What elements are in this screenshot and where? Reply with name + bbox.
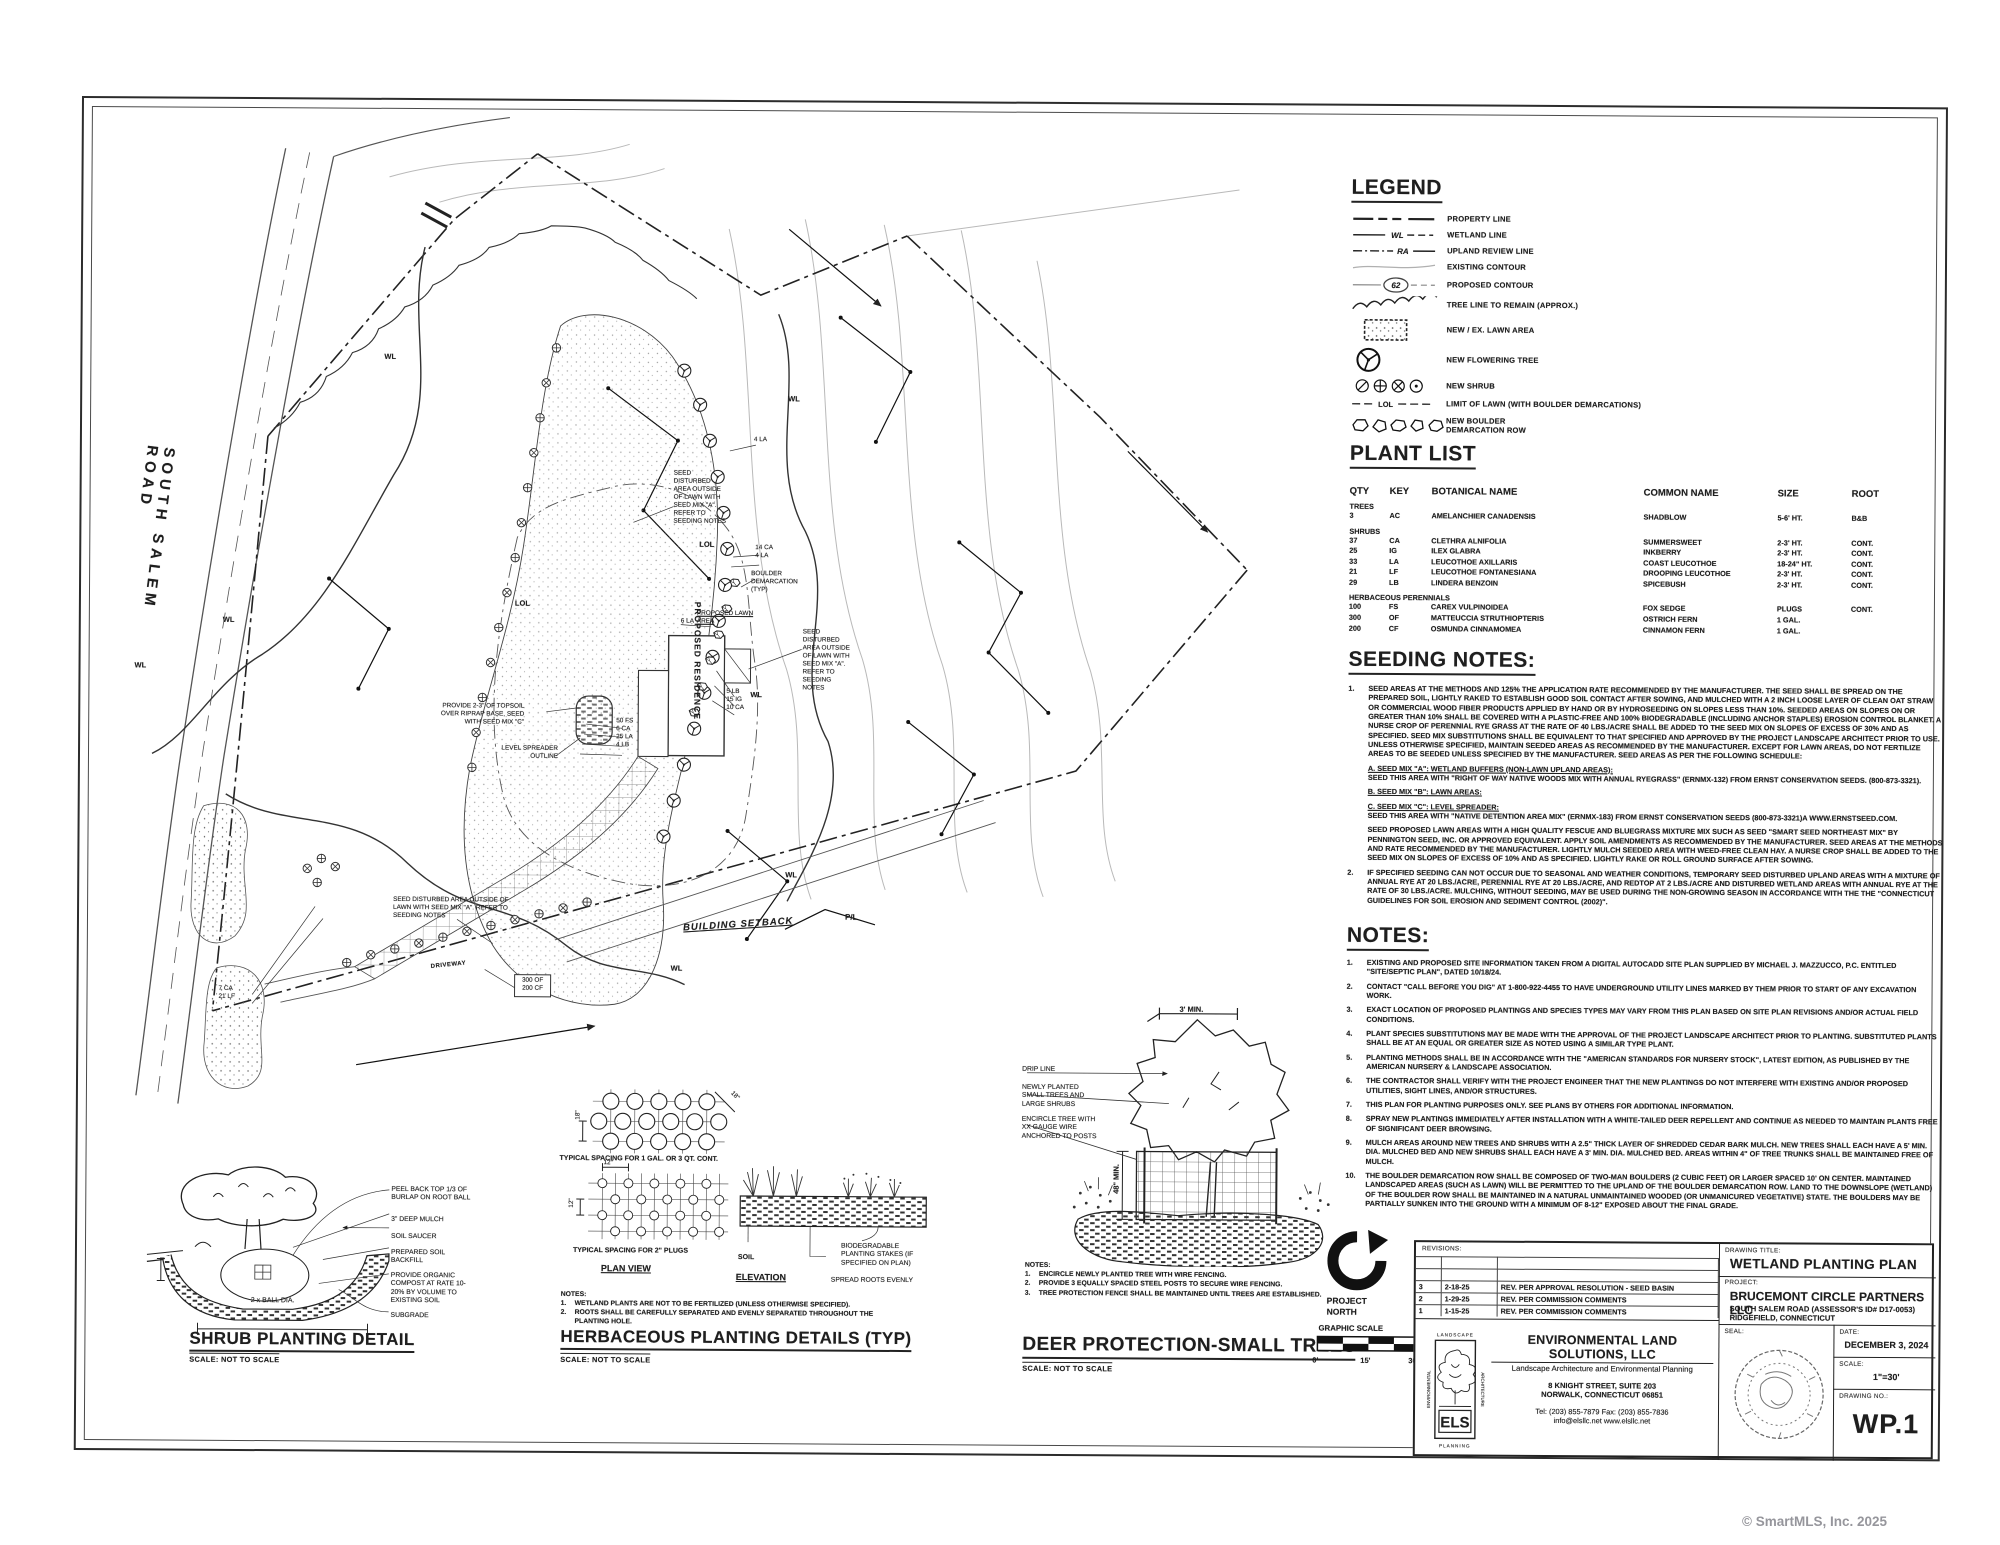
rev-2-date: 1-29-25 — [1442, 1292, 1498, 1304]
herb-caption-1: TYPICAL SPACING FOR 1 GAL. OR 3 QT. CONT… — [559, 1155, 717, 1165]
north-arrow-icon — [1326, 1230, 1388, 1292]
proposed-contour-symbol: 62 — [1351, 276, 1447, 295]
project-label: PROJECT: — [1725, 1279, 1758, 1286]
scale-value: 1"=30' — [1839, 1372, 1933, 1383]
project-addr2: RIDGEFIELD, CONNECTICUT — [1730, 1313, 1934, 1323]
scale-tick-0: 0' — [1312, 1356, 1318, 1365]
shrub-callout-3: SOIL SAUCER — [391, 1233, 487, 1242]
els-logo-text: ELS — [1440, 1414, 1469, 1431]
seeding-note-1: SEED AREAS AT THE METHODS AND 125% THE A… — [1368, 684, 1944, 762]
herb-caption-2: TYPICAL SPACING FOR 2" PLUGS — [573, 1247, 688, 1256]
herbaceous-detail-title: HERBACEOUS PLANTING DETAILS (TYP) — [560, 1327, 911, 1352]
scale-label: SCALE: — [1839, 1361, 1864, 1368]
drawing-title: WETLAND PLANTING PLAN — [1730, 1256, 1930, 1272]
project-north-label: PROJECT NORTH — [1327, 1296, 1367, 1318]
rev-3-date: 2-18-25 — [1442, 1280, 1498, 1292]
svg-text:ARCHITECTURE: ARCHITECTURE — [1480, 1372, 1485, 1406]
note-8: SPRAY NEW PLANTINGS IMMEDIATELY AFTER IN… — [1366, 1114, 1942, 1136]
drawing-sheet: WL WL WL WL WL WL WL LOL LOL SOUTH SALEM… — [0, 0, 2000, 1545]
seed-note-right: SEED DISTURBED AREA OUTSIDE OF LAWN WITH… — [802, 628, 850, 692]
legend-item-flowering-tree: NEW FLOWERING TREE — [1350, 346, 1690, 376]
herb-elevation-label: ELEVATION — [736, 1272, 786, 1282]
upland-review-symbol: RA — [1351, 244, 1447, 259]
legend-item-existing-contour: EXISTING CONTOUR — [1351, 260, 1691, 276]
legend-item-tree-line: TREE LINE TO REMAIN (APPROX.) — [1351, 296, 1691, 316]
tree-line-symbol — [1351, 296, 1447, 315]
deer-dim-top: 3' MIN. — [1179, 1005, 1203, 1015]
herb-stakes-label: BIODEGRADABLE PLANTING STAKES (IF SPECIF… — [841, 1243, 925, 1269]
seed-note-upper: SEED DISTURBED AREA OUTSIDE OF LAWN WITH… — [673, 470, 727, 526]
deer-detail-scale: SCALE: NOT TO SCALE — [1022, 1362, 1112, 1374]
note-9: MULCH AREAS AROUND NEW TREES AND SHRUBS … — [1366, 1138, 1942, 1170]
deer-dim-side: 48" MIN. — [1112, 1164, 1122, 1194]
scale-tick-15: 15' — [1360, 1356, 1370, 1365]
existing-contour-symbol — [1351, 260, 1447, 275]
herb-soil-label: SOIL — [738, 1254, 754, 1263]
rev-1-no: 1 — [1416, 1304, 1442, 1316]
flowering-tree-symbol — [1350, 346, 1446, 375]
deer-notes: NOTES: 1.ENCIRCLE NEWLY PLANTED TREE WIT… — [1025, 1262, 1325, 1302]
rev-1-date: 1-15-25 — [1442, 1304, 1498, 1316]
seed-mix-b-head: B. SEED MIX "B": LAWN AREAS: — [1368, 787, 1944, 800]
herb-plan-view-label: PLAN VIEW — [601, 1263, 651, 1273]
callout-14ca: 14 CA4 LA — [755, 544, 773, 560]
boulder-typ-label: BOULDER DEMARCATION (TYP) — [751, 570, 803, 594]
callout-6la: 6 LA — [681, 618, 694, 626]
shrub-dim-label: 2 x BALL DIA. — [233, 1297, 313, 1306]
note-10: THE BOULDER DEMARCATION ROW SHALL BE COM… — [1365, 1171, 1941, 1212]
drawing-no-label: DRAWING NO.: — [1839, 1393, 1888, 1400]
firm-info: ENVIRONMENTAL LAND SOLUTIONS, LLC Landsc… — [1491, 1333, 1714, 1426]
firm-name: ENVIRONMENTAL LAND SOLUTIONS, LLC — [1491, 1333, 1713, 1362]
callout-group3: 7 CA21 LF — [218, 985, 234, 1001]
shrub-callout-6: SUBGRADE — [391, 1312, 487, 1321]
lol-label: LOL — [699, 540, 714, 549]
rev-1-desc: REV. PER COMMISSION COMMENTS — [1498, 1305, 1719, 1318]
pl-marker: P/L — [845, 913, 858, 923]
topsoil-note: PROVIDE 2-3" OF TOPSOIL OVER RIPRAP BASE… — [432, 702, 524, 727]
scanned-sheet-page: WL WL WL WL WL WL WL LOL LOL SOUTH SALEM… — [0, 0, 2000, 1545]
herb-dim12-left: 12" — [568, 1198, 576, 1207]
date-value: DECEMBER 3, 2024 — [1839, 1340, 1933, 1351]
notes-title: NOTES: — [1347, 924, 1430, 952]
survey-traverse-lines — [326, 227, 1209, 1070]
rev-3-no: 3 — [1416, 1280, 1442, 1292]
date-label: DATE: — [1839, 1329, 1859, 1336]
stipple-patches — [190, 803, 266, 1089]
legend-list: PROPERTY LINE WL WETLAND LINE RA UPLAND … — [1350, 212, 1691, 441]
wl-label: WL — [785, 870, 797, 879]
wl-label: WL — [750, 690, 762, 699]
deer-callout-newly-planted: NEWLY PLANTED SMALL TREES AND LARGE SHRU… — [1022, 1084, 1096, 1110]
wl-label: WL — [788, 394, 800, 403]
revisions-label: REVISIONS: — [1422, 1245, 1462, 1252]
note-4: PLANT SPECIES SUBSTITUTIONS MAY BE MADE … — [1366, 1029, 1942, 1051]
wl-label: WL — [671, 964, 683, 973]
firm-web: info@elsllc.net www.elsllc.net — [1491, 1416, 1713, 1426]
svg-text:PLANNING: PLANNING — [1439, 1443, 1471, 1448]
south-salem-road — [136, 115, 510, 1105]
notes-list: 1.EXISTING AND PROPOSED SITE INFORMATION… — [1345, 958, 1943, 1217]
legend-item-limit-of-lawn: LOL LIMIT OF LAWN (WITH BOULDER DEMARCAT… — [1350, 397, 1690, 413]
limit-of-lawn-symbol: LOL — [1350, 397, 1446, 412]
wl-label: WL — [223, 615, 235, 624]
seeding-notes-body: 1.SEED AREAS AT THE METHODS AND 125% THE… — [1347, 684, 1944, 914]
seal-label: SEAL: — [1724, 1328, 1744, 1335]
herbaceous-detail-scale: SCALE: NOT TO SCALE — [560, 1353, 650, 1365]
lawn-area-label: PROPOSED LAWN AREA — [697, 610, 769, 626]
seeding-note-2: IF SPECIFIED SEEDING CAN NOT OCCUR DUE T… — [1367, 867, 1943, 908]
rev-2-no: 2 — [1416, 1292, 1442, 1304]
callout-4la: 4 LA — [754, 436, 767, 444]
wl-label: WL — [384, 352, 396, 361]
revisions-table: 3 2-18-25 REV. PER APPROVAL RESOLUTION -… — [1416, 1256, 1719, 1318]
shrub-callout-4: PREPARED SOIL BACKFILL — [391, 1249, 471, 1266]
note-2: CONTACT "CALL BEFORE YOU DIG" AT 1-800-9… — [1367, 982, 1943, 1004]
shrub-detail-sketch — [142, 1162, 393, 1344]
lawn-area-symbol — [1351, 318, 1447, 343]
deer-callout-dripline: DRIP LINE — [1022, 1066, 1092, 1075]
seed-note-bottom: SEED DISTURBED AREA OUTSIDE OF LAWN WITH… — [393, 896, 511, 921]
legend-item-lawn-area: NEW / EX. LAWN AREA — [1351, 318, 1691, 344]
drawing-no-value: WP.1 — [1839, 1409, 1933, 1441]
lol-label: LOL — [515, 599, 530, 608]
smartmls-watermark: © SmartMLS, Inc. 2025 — [1742, 1514, 1887, 1529]
firm-tagline: Landscape Architecture and Environmental… — [1491, 1362, 1713, 1374]
shrub-callout-1: PEEL BACK TOP 1/3 OF BURLAP ON ROOT BALL — [391, 1186, 487, 1204]
legend-item-proposed-contour: 62 PROPOSED CONTOUR — [1351, 276, 1691, 296]
callout-group1: 50 FS6 CA25 LA4 LB — [616, 717, 633, 749]
svg-text:62: 62 — [1391, 281, 1401, 290]
deer-callout-encircle: ENCIRCLE TREE WITH XX GAUGE WIRE ANCHORE… — [1022, 1116, 1102, 1142]
svg-text:ENVIRONMENTAL: ENVIRONMENTAL — [1426, 1370, 1431, 1408]
plant-list-table: QTY KEY BOTANICAL NAME COMMON NAME SIZE … — [1349, 486, 1910, 638]
new-shrub-symbol — [1350, 377, 1446, 396]
herb-dim18-left: 18" — [574, 1110, 582, 1119]
callout-box-text: 300 OF200 CF — [517, 977, 549, 993]
legend-item-upland-review-line: RA UPLAND REVIEW LINE — [1351, 244, 1691, 260]
firm-addr2: NORWALK, CONNECTICUT 06851 — [1491, 1390, 1713, 1400]
drawing-title-label: DRAWING TITLE: — [1725, 1247, 1781, 1254]
legend-title: LEGEND — [1351, 176, 1442, 204]
graphic-scale-bar — [1316, 1336, 1420, 1353]
legend-item-new-shrub: NEW SHRUB — [1350, 377, 1690, 397]
wetland-line-symbol: WL — [1351, 228, 1447, 243]
callout-group2: 5 LB15 IG10 CA — [726, 688, 744, 712]
els-logo: ELS LANDSCAPE PLANNING ENVIRONMENTAL ARC… — [1425, 1328, 1486, 1450]
legend-item-boulder-row: NEW BOULDER DEMARCATION ROW — [1350, 415, 1690, 439]
herb-roots-label: SPREAD ROOTS EVENLY — [831, 1277, 941, 1286]
note-7: THIS PLAN FOR PLANTING PURPOSES ONLY. SE… — [1366, 1100, 1942, 1113]
seed-lawn-para: SEED PROPOSED LAWN AREAS WITH A HIGH QUA… — [1367, 825, 1943, 866]
note-3: EXACT LOCATION OF PROPOSED PLANTINGS AND… — [1366, 1005, 1942, 1027]
deer-detail-title: DEER PROTECTION-SMALL TREES — [1022, 1334, 1356, 1361]
level-spreader-outline — [576, 696, 612, 744]
shrub-detail-title: SHRUB PLANTING DETAIL — [189, 1329, 414, 1353]
svg-text:WL: WL — [1391, 231, 1404, 240]
boulder-row-symbol — [1350, 415, 1446, 438]
title-block: REVISIONS: 3 2-18-25 REV. PER APPROVAL R… — [1413, 1240, 1934, 1459]
level-spreader-label: LEVEL SPREADER OUTLINE — [492, 744, 558, 760]
plant-list-title: PLANT LIST — [1350, 442, 1476, 470]
seeding-notes-title: SEEDING NOTES: — [1349, 648, 1536, 676]
note-5: PLANTING METHODS SHALL BE IN ACCORDANCE … — [1366, 1052, 1942, 1074]
svg-text:LANDSCAPE: LANDSCAPE — [1437, 1332, 1474, 1337]
culvert-mark — [421, 203, 451, 227]
seal-stamp — [1727, 1336, 1832, 1455]
shrub-detail-scale: SCALE: NOT TO SCALE — [189, 1353, 279, 1365]
svg-text:LOL: LOL — [1378, 400, 1393, 409]
shrub-callout-5: PROVIDE ORGANIC COMPOST AT RATE 10-20% B… — [391, 1272, 475, 1306]
herb-notes: NOTES: 1.WETLAND PLANTS ARE NOT TO BE FE… — [560, 1291, 900, 1330]
property-line-symbol — [1351, 212, 1447, 227]
legend-item-wetland-line: WL WETLAND LINE — [1351, 228, 1691, 244]
legend-item-property-line: PROPERTY LINE — [1351, 212, 1691, 228]
graphic-scale-label: GRAPHIC SCALE — [1318, 1324, 1383, 1333]
note-6: THE CONTRACTOR SHALL VERIFY WITH THE PRO… — [1366, 1076, 1942, 1098]
note-1: EXISTING AND PROPOSED SITE INFORMATION T… — [1367, 958, 1943, 980]
shrub-callout-2: 3" DEEP MULCH — [391, 1216, 487, 1225]
svg-text:RA: RA — [1397, 247, 1409, 256]
herb-dim12-top: 12" — [603, 1159, 612, 1167]
